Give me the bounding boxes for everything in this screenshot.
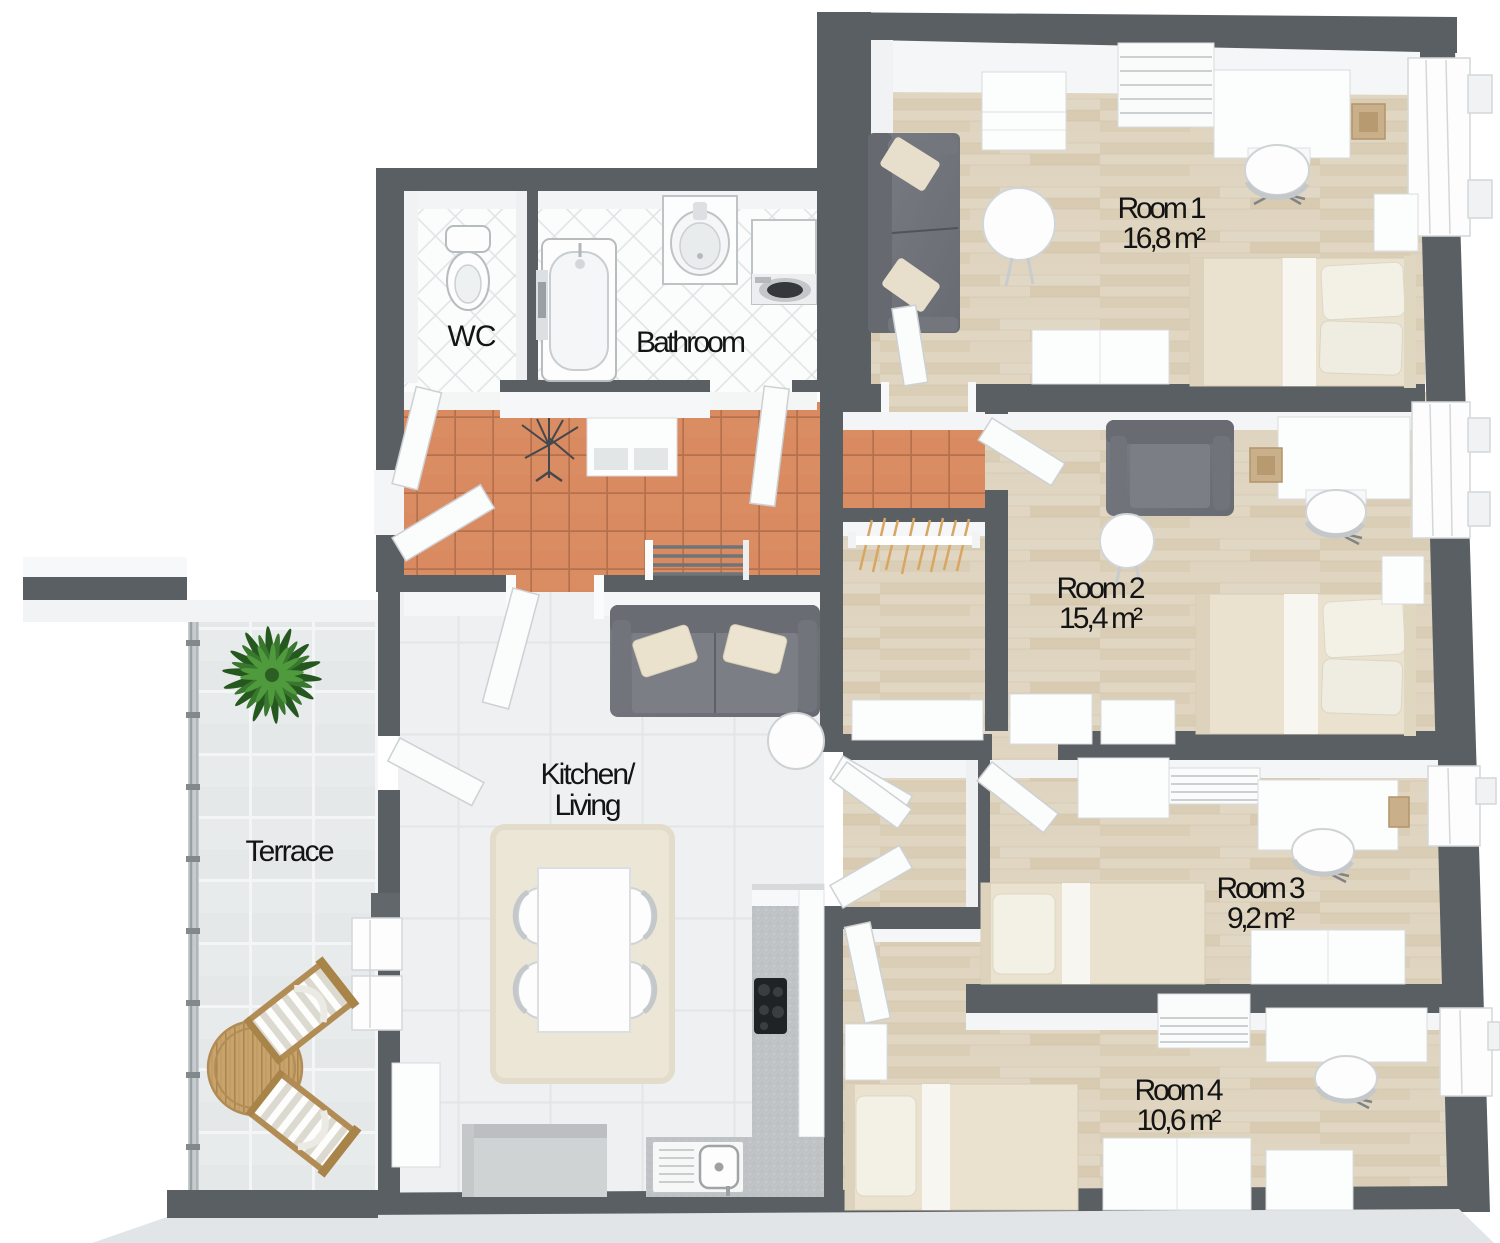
- svg-text:10,6 m²: 10,6 m²: [1137, 1104, 1222, 1137]
- svg-text:9,2 m²: 9,2 m²: [1227, 902, 1295, 935]
- svg-text:Room 3: Room 3: [1217, 872, 1306, 905]
- svg-text:Room 1: Room 1: [1118, 192, 1207, 225]
- svg-text:Room 4: Room 4: [1135, 1074, 1224, 1107]
- svg-text:Living: Living: [555, 789, 622, 822]
- svg-text:Terrace: Terrace: [246, 835, 335, 868]
- svg-text:Bathroom: Bathroom: [636, 326, 746, 359]
- svg-text:15,4 m²: 15,4 m²: [1059, 602, 1143, 635]
- svg-text:Room 2: Room 2: [1057, 572, 1146, 605]
- svg-text:16,8 m²: 16,8 m²: [1122, 222, 1206, 255]
- svg-text:Kitchen/: Kitchen/: [541, 758, 637, 791]
- svg-text:WC: WC: [448, 320, 497, 353]
